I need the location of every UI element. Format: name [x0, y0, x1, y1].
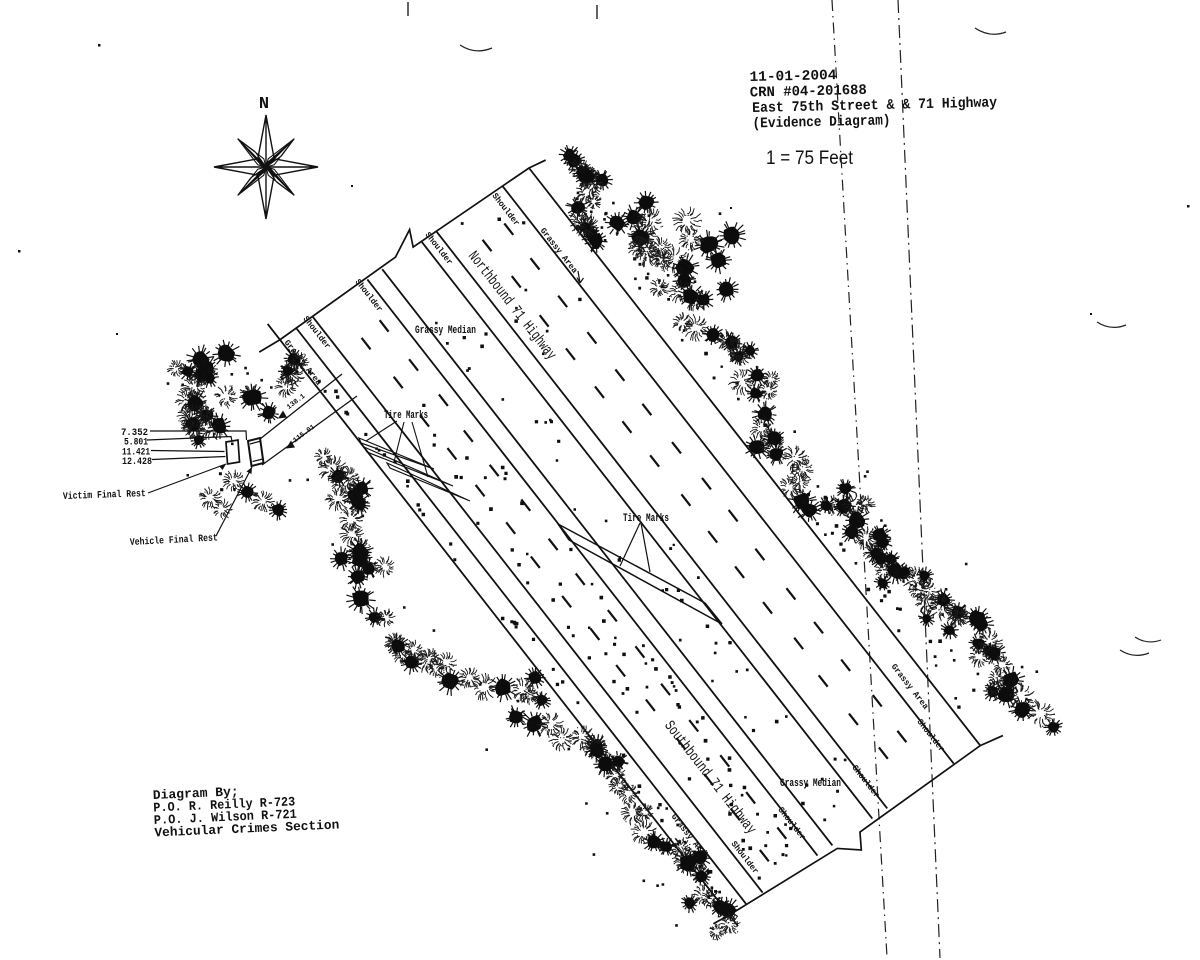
svg-text:N: N — [259, 95, 269, 114]
svg-text:12.428: 12.428 — [122, 456, 152, 468]
svg-text:Tire Marks: Tire Marks — [623, 513, 669, 525]
svg-text:Tire Marks: Tire Marks — [384, 410, 428, 422]
svg-text:(Evidence Diagram): (Evidence Diagram) — [752, 113, 890, 132]
svg-text:Grassy Median: Grassy Median — [415, 325, 476, 337]
svg-text:Grassy Median: Grassy Median — [780, 778, 841, 790]
